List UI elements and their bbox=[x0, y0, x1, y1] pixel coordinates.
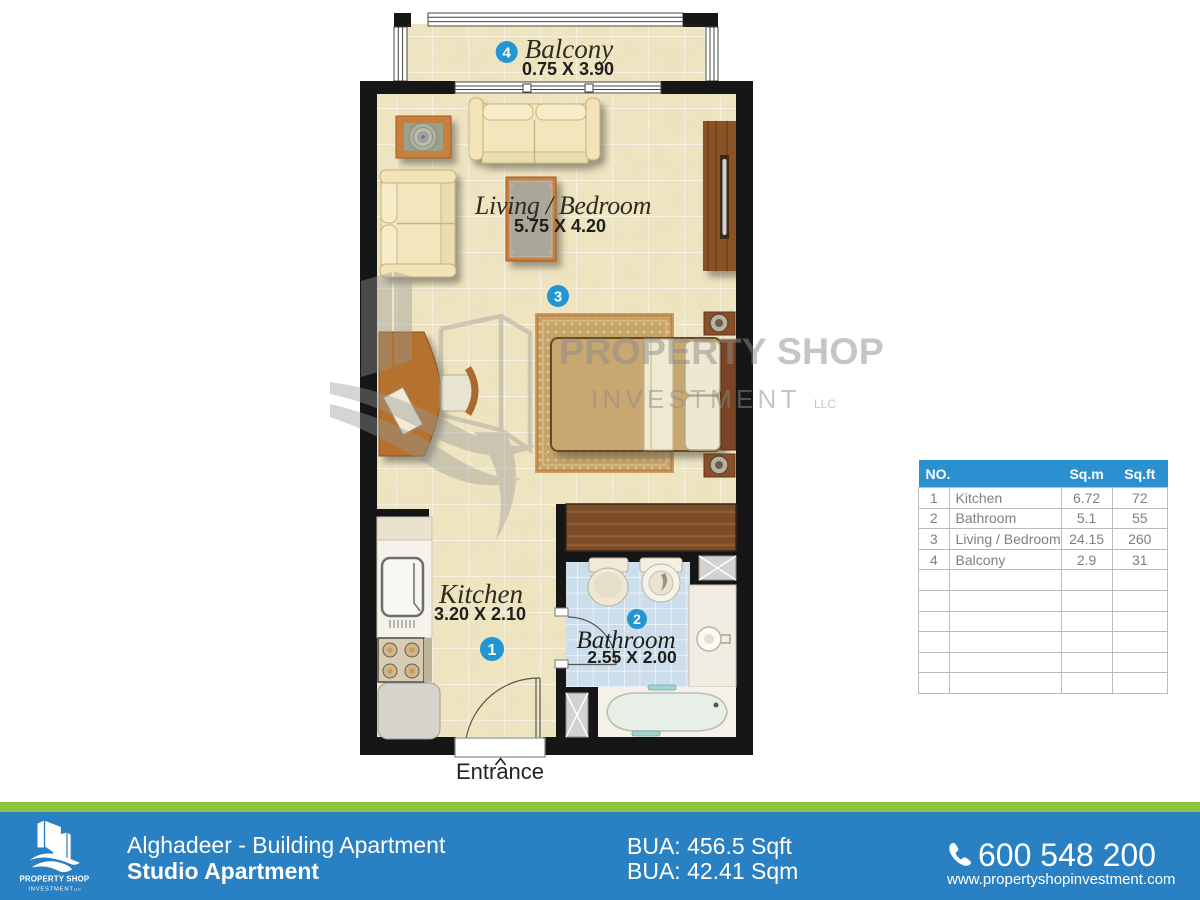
svg-text:0.75 X 3.90: 0.75 X 3.90 bbox=[522, 59, 614, 79]
svg-text:1: 1 bbox=[488, 642, 497, 659]
svg-text:INVESTMENT: INVESTMENT bbox=[28, 886, 73, 892]
svg-text:4: 4 bbox=[503, 45, 512, 62]
svg-text:LLC: LLC bbox=[74, 887, 81, 891]
svg-text:3: 3 bbox=[554, 289, 562, 306]
svg-text:3.20 X 2.10: 3.20 X 2.10 bbox=[434, 604, 526, 624]
svg-text:2: 2 bbox=[633, 611, 641, 627]
svg-text:Entrance: Entrance bbox=[456, 759, 544, 784]
svg-text:5.75 X 4.20: 5.75 X 4.20 bbox=[514, 216, 606, 236]
svg-text:INVESTMENT: INVESTMENT bbox=[591, 384, 801, 414]
svg-text:LLC: LLC bbox=[814, 397, 836, 411]
svg-text:2.55 X 2.00: 2.55 X 2.00 bbox=[587, 647, 677, 667]
svg-text:PROPERTY SHOP: PROPERTY SHOP bbox=[20, 875, 90, 884]
svg-text:PROPERTY SHOP: PROPERTY SHOP bbox=[559, 330, 884, 372]
